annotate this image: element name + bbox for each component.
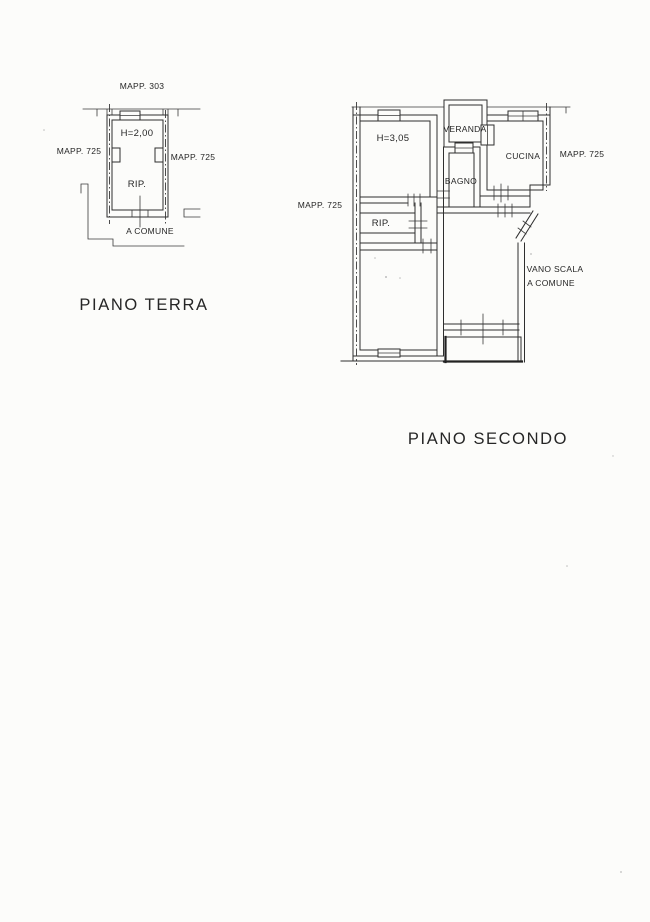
gf-height-label: H=2,00 <box>121 128 154 139</box>
sf-floor-title: PIANO SECONDO <box>408 430 568 448</box>
sf-veranda-label: VERANDA <box>443 124 486 134</box>
sf-height-label: H=3,05 <box>377 133 410 144</box>
gf-storage-room-label: RIP. <box>128 179 146 190</box>
gf-mapp-725-right-label: MAPP. 725 <box>171 152 216 162</box>
sf-mapp-725-right-label: MAPP. 725 <box>560 149 605 159</box>
gf-adjacent-outline <box>81 184 184 246</box>
gf-pilaster-notches <box>112 148 163 162</box>
sf-walls <box>341 100 550 362</box>
floor-plan-drawing: MAPP. 303 MAPP. 725 MAPP. 725 H=2,00 RIP… <box>0 0 650 922</box>
sf-bathroom-label: BAGNO <box>445 176 477 186</box>
gf-door-ticks <box>132 196 148 227</box>
sf-kitchen-label: CUCINA <box>506 151 540 161</box>
second-floor-plan: H=3,05 VERANDA CUCINA BAGNO RIP. MAPP. 7… <box>298 100 605 448</box>
sf-stairwell-label-line2: A COMUNE <box>527 278 575 288</box>
sf-mapp-725-left-label: MAPP. 725 <box>298 200 343 210</box>
ground-floor-plan: MAPP. 303 MAPP. 725 MAPP. 725 H=2,00 RIP… <box>57 81 216 314</box>
gf-shared-area-label: A COMUNE <box>126 226 174 236</box>
gf-floor-title: PIANO TERRA <box>79 296 208 314</box>
scan-noise-specks <box>43 129 622 873</box>
sf-door-ticks <box>408 184 512 344</box>
gf-mapp-303-label: MAPP. 303 <box>120 81 165 91</box>
gf-mapp-725-left-label: MAPP. 725 <box>57 146 102 156</box>
scanned-cadastral-floor-plan-page: MAPP. 303 MAPP. 725 MAPP. 725 H=2,00 RIP… <box>0 0 650 922</box>
gf-parcel-boundary-lines <box>110 104 166 224</box>
gf-adjacent-wall-fragment <box>184 209 200 217</box>
sf-stairwell-label-line1: VANO SCALA <box>527 264 584 274</box>
sf-storage-room-label: RIP. <box>372 218 390 229</box>
sf-diagonal-entrance-door <box>516 211 538 241</box>
